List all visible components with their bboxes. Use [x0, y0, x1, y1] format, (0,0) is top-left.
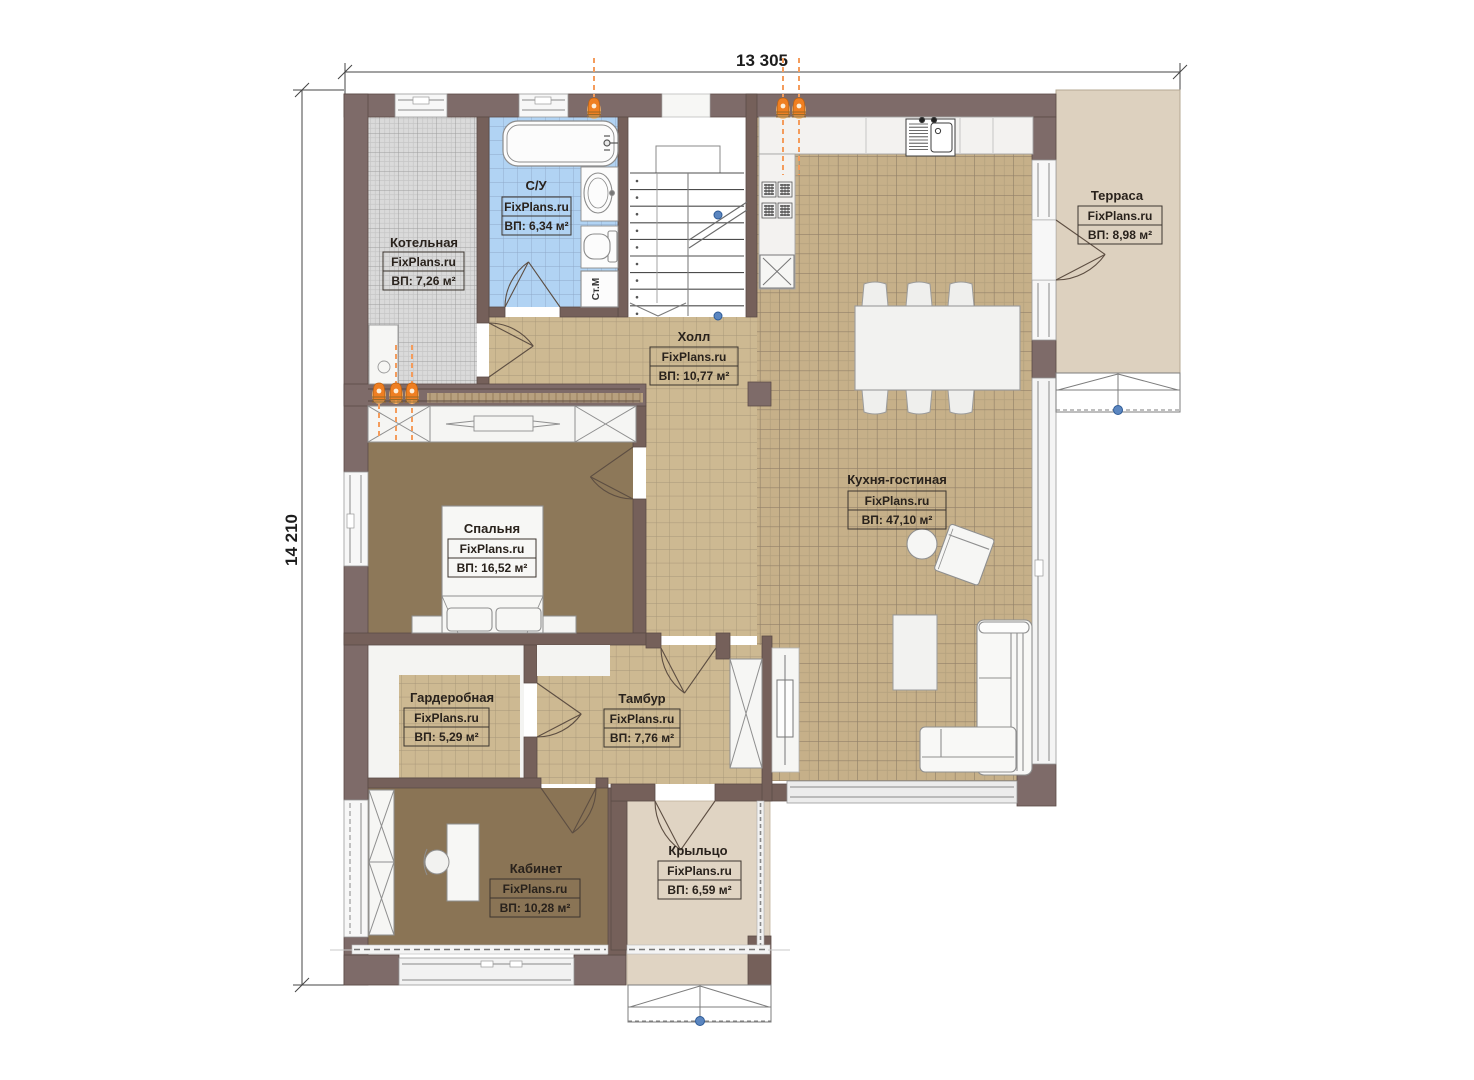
svg-text:ВП: 7,26 м²: ВП: 7,26 м² — [391, 274, 455, 288]
svg-text:ВП: 10,28 м²: ВП: 10,28 м² — [500, 901, 571, 915]
svg-text:ВП: 5,29 м²: ВП: 5,29 м² — [414, 730, 478, 744]
svg-text:FixPlans.ru: FixPlans.ru — [504, 200, 569, 214]
svg-text:FixPlans.ru: FixPlans.ru — [1088, 209, 1153, 223]
svg-text:Крыльцо: Крыльцо — [668, 843, 727, 858]
svg-text:ВП: 7,76 м²: ВП: 7,76 м² — [610, 731, 674, 745]
svg-text:FixPlans.ru: FixPlans.ru — [865, 494, 930, 508]
svg-text:13 305: 13 305 — [736, 51, 788, 70]
svg-text:Терраса: Терраса — [1091, 188, 1144, 203]
svg-text:ВП: 16,52 м²: ВП: 16,52 м² — [457, 561, 528, 575]
svg-text:ВП: 6,34 м²: ВП: 6,34 м² — [504, 219, 568, 233]
svg-text:FixPlans.ru: FixPlans.ru — [414, 711, 479, 725]
svg-text:Тамбур: Тамбур — [618, 691, 665, 706]
svg-text:FixPlans.ru: FixPlans.ru — [391, 255, 456, 269]
svg-text:Ст.М: Ст.М — [591, 278, 602, 300]
svg-text:Кабинет: Кабинет — [510, 861, 563, 876]
svg-text:ВП: 10,77 м²: ВП: 10,77 м² — [659, 369, 730, 383]
svg-text:FixPlans.ru: FixPlans.ru — [460, 542, 525, 556]
svg-text:FixPlans.ru: FixPlans.ru — [667, 864, 732, 878]
svg-text:14 210: 14 210 — [282, 514, 301, 566]
svg-text:ВП: 6,59 м²: ВП: 6,59 м² — [667, 883, 731, 897]
svg-text:Гардеробная: Гардеробная — [410, 690, 494, 705]
svg-text:С/У: С/У — [525, 178, 547, 193]
svg-text:Котельная: Котельная — [390, 235, 458, 250]
svg-text:ВП: 47,10 м²: ВП: 47,10 м² — [862, 513, 933, 527]
svg-text:Кухня-гостиная: Кухня-гостиная — [847, 472, 947, 487]
svg-text:FixPlans.ru: FixPlans.ru — [662, 350, 727, 364]
svg-text:Холл: Холл — [678, 329, 711, 344]
svg-text:ВП: 8,98 м²: ВП: 8,98 м² — [1088, 228, 1152, 242]
svg-text:Спальня: Спальня — [464, 521, 520, 536]
svg-text:FixPlans.ru: FixPlans.ru — [503, 882, 568, 896]
svg-text:FixPlans.ru: FixPlans.ru — [610, 712, 675, 726]
